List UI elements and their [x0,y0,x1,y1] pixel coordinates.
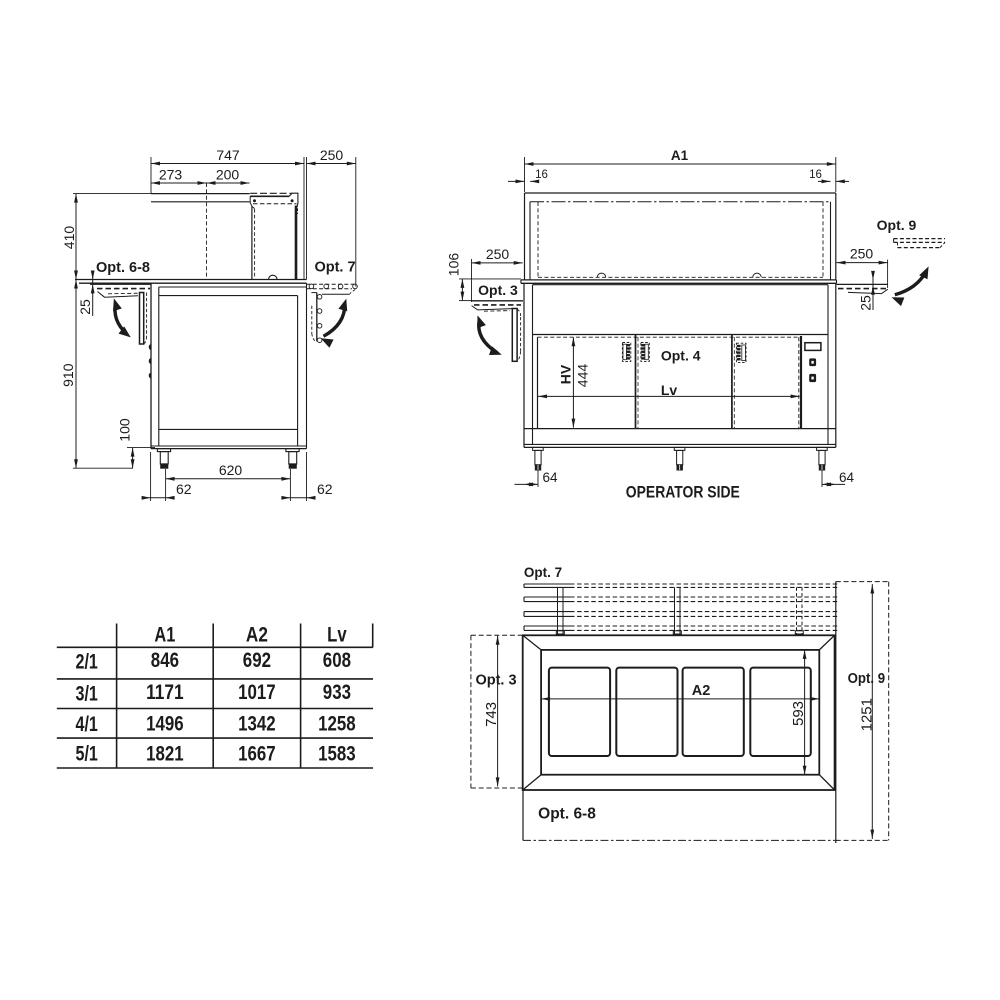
svg-text:Opt. 3: Opt. 3 [478,282,518,298]
svg-text:64: 64 [543,470,559,485]
svg-text:250: 250 [320,147,344,163]
svg-text:Opt. 4: Opt. 4 [661,348,701,364]
svg-text:A1: A1 [671,148,689,163]
svg-text:1342: 1342 [238,712,276,735]
svg-text:410: 410 [61,226,77,250]
svg-text:A2: A2 [692,683,711,699]
svg-text:4/1: 4/1 [76,713,99,736]
svg-text:1583: 1583 [318,742,356,765]
svg-text:106: 106 [446,253,462,277]
svg-text:620: 620 [219,462,243,478]
svg-text:910: 910 [60,363,76,387]
svg-text:743: 743 [483,702,500,727]
svg-text:5/1: 5/1 [76,743,99,766]
svg-text:Opt. 9: Opt. 9 [877,217,917,233]
svg-text:64: 64 [839,470,855,485]
svg-text:200: 200 [216,167,240,183]
svg-text:A1: A1 [154,624,175,647]
svg-text:16: 16 [535,169,548,181]
svg-text:62: 62 [176,481,192,497]
svg-text:100: 100 [117,418,133,442]
svg-text:1171: 1171 [146,681,184,704]
svg-text:Opt. 6-8: Opt. 6-8 [538,806,596,823]
svg-text:Opt. 6-8: Opt. 6-8 [96,260,150,276]
svg-text:16: 16 [809,169,822,181]
svg-text:747: 747 [216,147,240,163]
svg-text:444: 444 [574,364,590,388]
svg-text:692: 692 [243,649,271,672]
svg-text:62: 62 [317,481,333,497]
svg-text:Opt. 9: Opt. 9 [848,671,886,687]
svg-text:1017: 1017 [238,681,276,704]
svg-text:Lv: Lv [661,382,678,398]
svg-text:273: 273 [159,167,183,183]
svg-text:1667: 1667 [238,742,276,765]
svg-text:608: 608 [323,649,351,672]
svg-text:250: 250 [850,246,874,262]
svg-text:3/1: 3/1 [76,683,99,706]
svg-text:Lv: Lv [327,624,347,647]
svg-text:Opt. 3: Opt. 3 [475,673,516,689]
svg-text:2/1: 2/1 [76,651,99,674]
svg-text:1251: 1251 [858,698,875,731]
svg-text:25: 25 [858,295,874,311]
svg-text:HV: HV [558,364,574,384]
svg-text:933: 933 [323,681,351,704]
svg-text:1821: 1821 [146,742,184,765]
svg-text:250: 250 [486,246,510,262]
svg-text:1496: 1496 [146,712,184,735]
svg-text:846: 846 [151,649,179,672]
svg-text:OPERATOR SIDE: OPERATOR SIDE [626,484,740,502]
svg-text:A2: A2 [246,624,268,647]
svg-text:Opt. 7: Opt. 7 [314,260,355,276]
svg-text:1258: 1258 [318,712,356,735]
svg-text:593: 593 [790,701,807,726]
svg-text:25: 25 [77,299,93,315]
svg-text:Opt. 7: Opt. 7 [524,565,562,580]
